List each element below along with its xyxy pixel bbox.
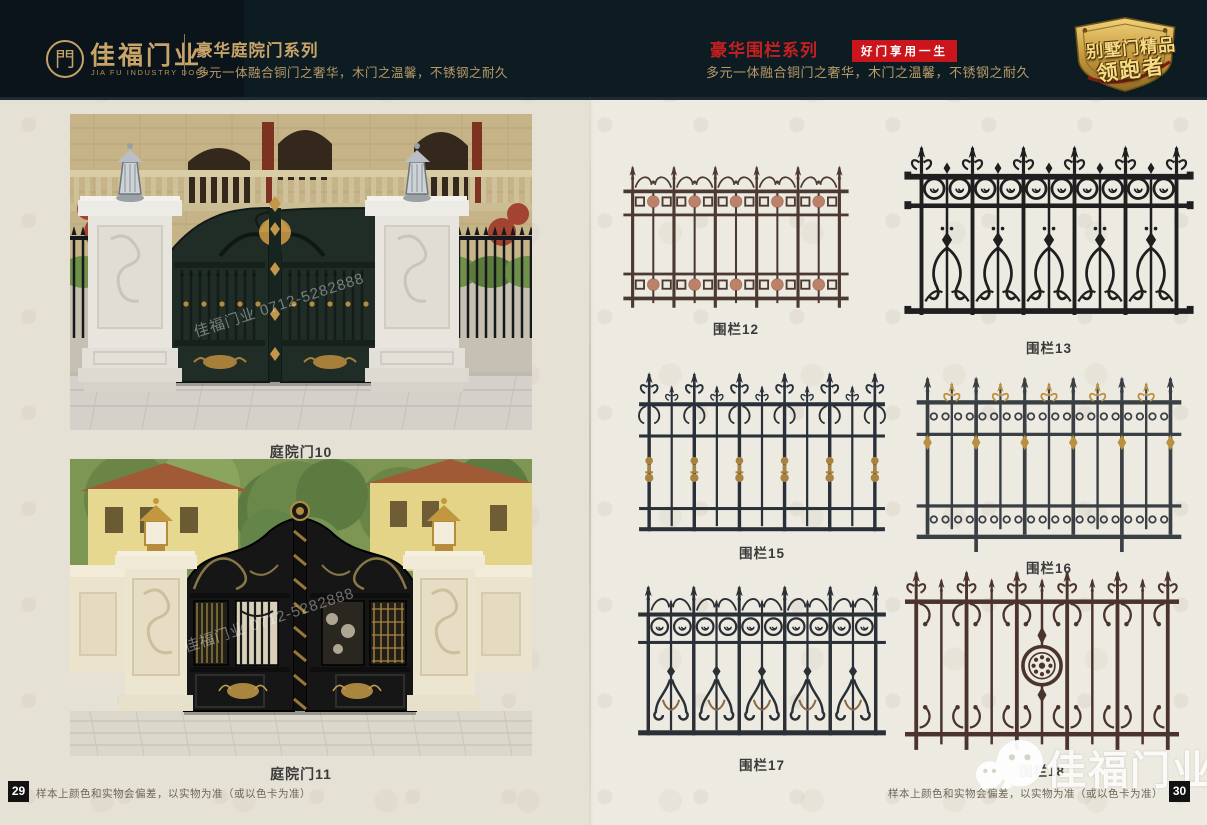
fence-17-image bbox=[630, 580, 894, 753]
header-divider bbox=[184, 34, 185, 76]
slogan-badge: 好门享用一生 bbox=[852, 40, 957, 62]
gate-photo-10-image bbox=[70, 114, 532, 430]
right-series-title: 豪华围栏系列 bbox=[710, 36, 818, 61]
fence-item-17: 围栏17 bbox=[630, 580, 894, 774]
gate-caption-11: 庭院门11 bbox=[270, 764, 332, 784]
page-number-right: 30 bbox=[1169, 781, 1190, 802]
color-note-left: 样本上颜色和实物会偏差，以实物为准（或以色卡为准） bbox=[36, 786, 311, 801]
fence-caption-12: 围栏12 bbox=[616, 318, 856, 338]
gate-photo-11-image bbox=[70, 459, 532, 756]
left-series-title: 豪华庭院门系列 bbox=[196, 37, 319, 61]
gate-photo-10: 佳福门业 0712-5282888 bbox=[70, 114, 532, 430]
header-bar: 門 佳福门业 JIA FU INDUSTRY DOOR 豪华庭院门系列 多元一体… bbox=[0, 0, 1207, 100]
page-fold-divider bbox=[589, 97, 591, 825]
fence-18-image bbox=[896, 568, 1188, 759]
brand-name-en: JIA FU INDUSTRY DOOR bbox=[91, 68, 210, 77]
fence-item-13: 围栏13 bbox=[901, 142, 1197, 357]
brand-logo-icon: 門 bbox=[46, 40, 84, 78]
gate-photo-11: 佳福门业 0712-5282888 bbox=[70, 459, 532, 756]
fence-caption-18: 围栏18 bbox=[896, 760, 1188, 780]
color-note-right: 样本上颜色和实物会偏差，以实物为准（或以色卡为准） bbox=[888, 786, 1163, 801]
fence-caption-15: 围栏15 bbox=[631, 542, 893, 562]
fence-13-image bbox=[901, 142, 1197, 336]
left-series-subtitle: 多元一体融合铜门之奢华，木门之温馨，不锈钢之耐久 bbox=[196, 62, 508, 81]
catalog-page: 門 佳福门业 JIA FU INDUSTRY DOOR 豪华庭院门系列 多元一体… bbox=[0, 0, 1207, 825]
page-number-left: 29 bbox=[8, 781, 29, 802]
fence-16-image bbox=[908, 372, 1190, 556]
fence-item-15: 围栏15 bbox=[631, 370, 893, 562]
brand-name: 佳福门业 bbox=[90, 36, 202, 72]
fence-12-image bbox=[616, 160, 856, 317]
fence-item-18: 围栏18 bbox=[896, 568, 1188, 780]
shield-emblem: 别墅门精品 领跑者 bbox=[1048, 8, 1206, 100]
right-series-subtitle: 多元一体融合铜门之奢华，木门之温馨，不锈钢之耐久 bbox=[706, 62, 1030, 81]
fence-caption-17: 围栏17 bbox=[630, 754, 894, 774]
fence-15-image bbox=[631, 370, 893, 541]
fence-caption-13: 围栏13 bbox=[901, 337, 1197, 357]
fence-item-12: 围栏12 bbox=[616, 160, 856, 338]
fence-item-16: 围栏16 bbox=[908, 372, 1190, 577]
